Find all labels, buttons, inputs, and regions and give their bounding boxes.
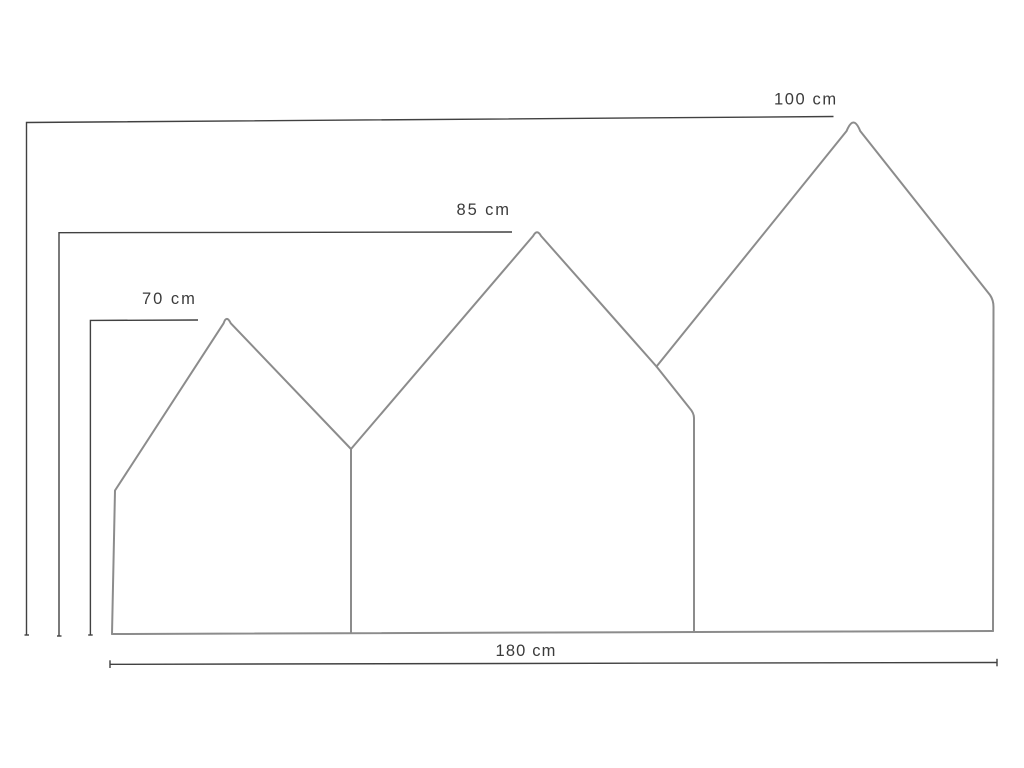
svg-text:85 cm: 85 cm xyxy=(457,201,511,219)
svg-text:180 cm: 180 cm xyxy=(496,642,557,660)
svg-text:100 cm: 100 cm xyxy=(774,91,838,109)
svg-text:70 cm: 70 cm xyxy=(142,290,197,308)
